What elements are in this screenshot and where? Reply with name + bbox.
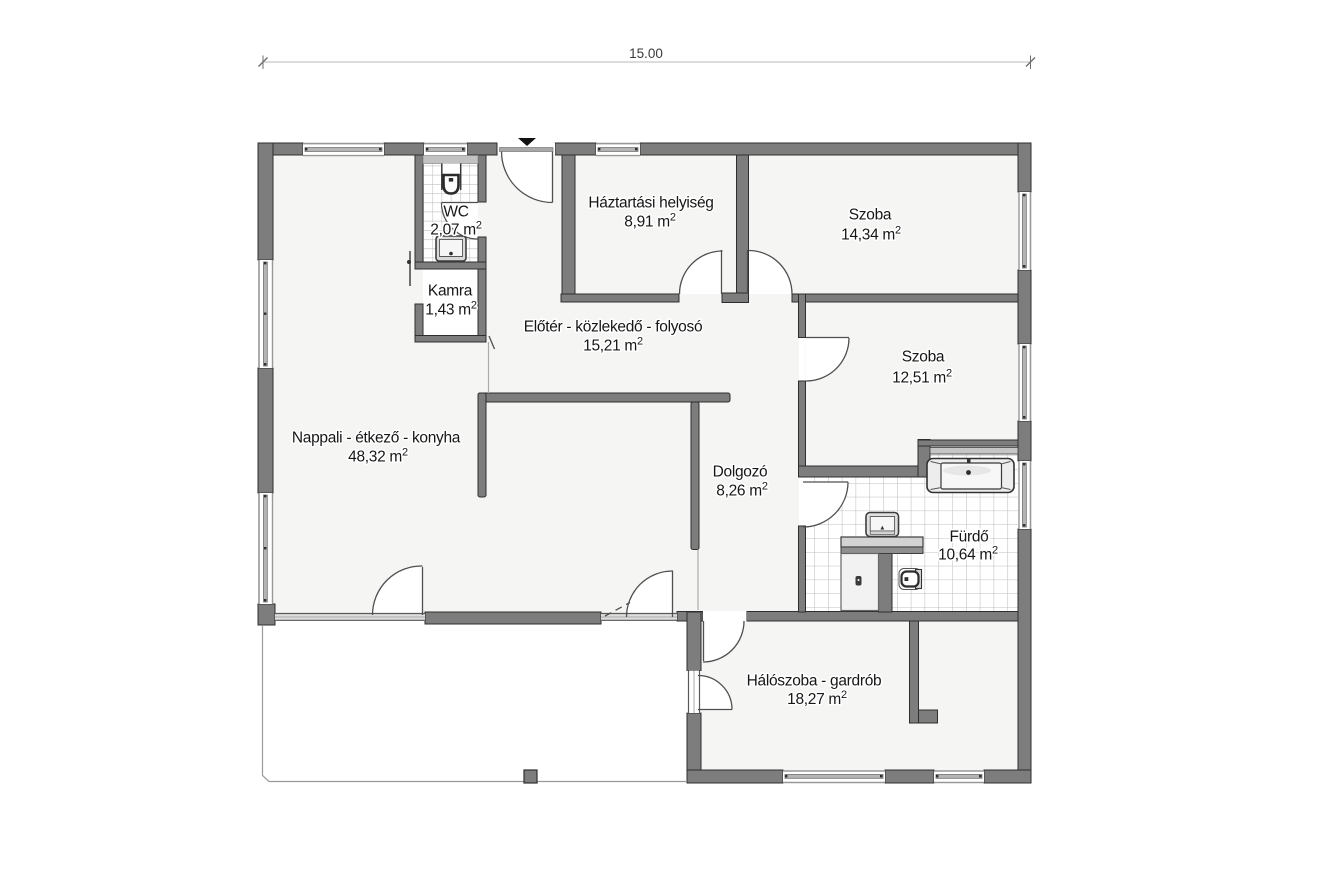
svg-text:Szoba: Szoba	[849, 207, 892, 224]
svg-text:Nappali - étkező - konyha: Nappali - étkező - konyha	[292, 430, 461, 447]
svg-text:8,91 m2: 8,91 m2	[624, 212, 676, 231]
svg-text:2,07 m2: 2,07 m2	[430, 220, 482, 239]
svg-text:Kamra: Kamra	[428, 283, 473, 300]
svg-text:48,32 m2: 48,32 m2	[348, 447, 408, 466]
svg-text:Háztartási helyiség: Háztartási helyiség	[588, 195, 713, 212]
svg-text:WC: WC	[443, 204, 468, 221]
svg-text:15.00: 15.00	[629, 46, 663, 61]
svg-text:15,21 m2: 15,21 m2	[583, 336, 643, 355]
svg-text:Előtér - közlekedő - folyosó: Előtér - közlekedő - folyosó	[524, 319, 703, 336]
svg-text:8,26 m2: 8,26 m2	[716, 481, 768, 500]
svg-text:Fürdő: Fürdő	[950, 529, 989, 546]
svg-text:Szoba: Szoba	[902, 349, 945, 366]
svg-text:12,51 m2: 12,51 m2	[892, 368, 952, 387]
svg-text:18,27 m2: 18,27 m2	[787, 689, 847, 708]
svg-text:Hálószoba - gardrób: Hálószoba - gardrób	[747, 673, 882, 690]
svg-text:Dolgozó: Dolgozó	[713, 464, 768, 481]
svg-text:14,34 m2: 14,34 m2	[841, 225, 901, 244]
svg-text:1,43 m2: 1,43 m2	[425, 300, 477, 319]
svg-text:10,64 m2: 10,64 m2	[938, 545, 998, 564]
